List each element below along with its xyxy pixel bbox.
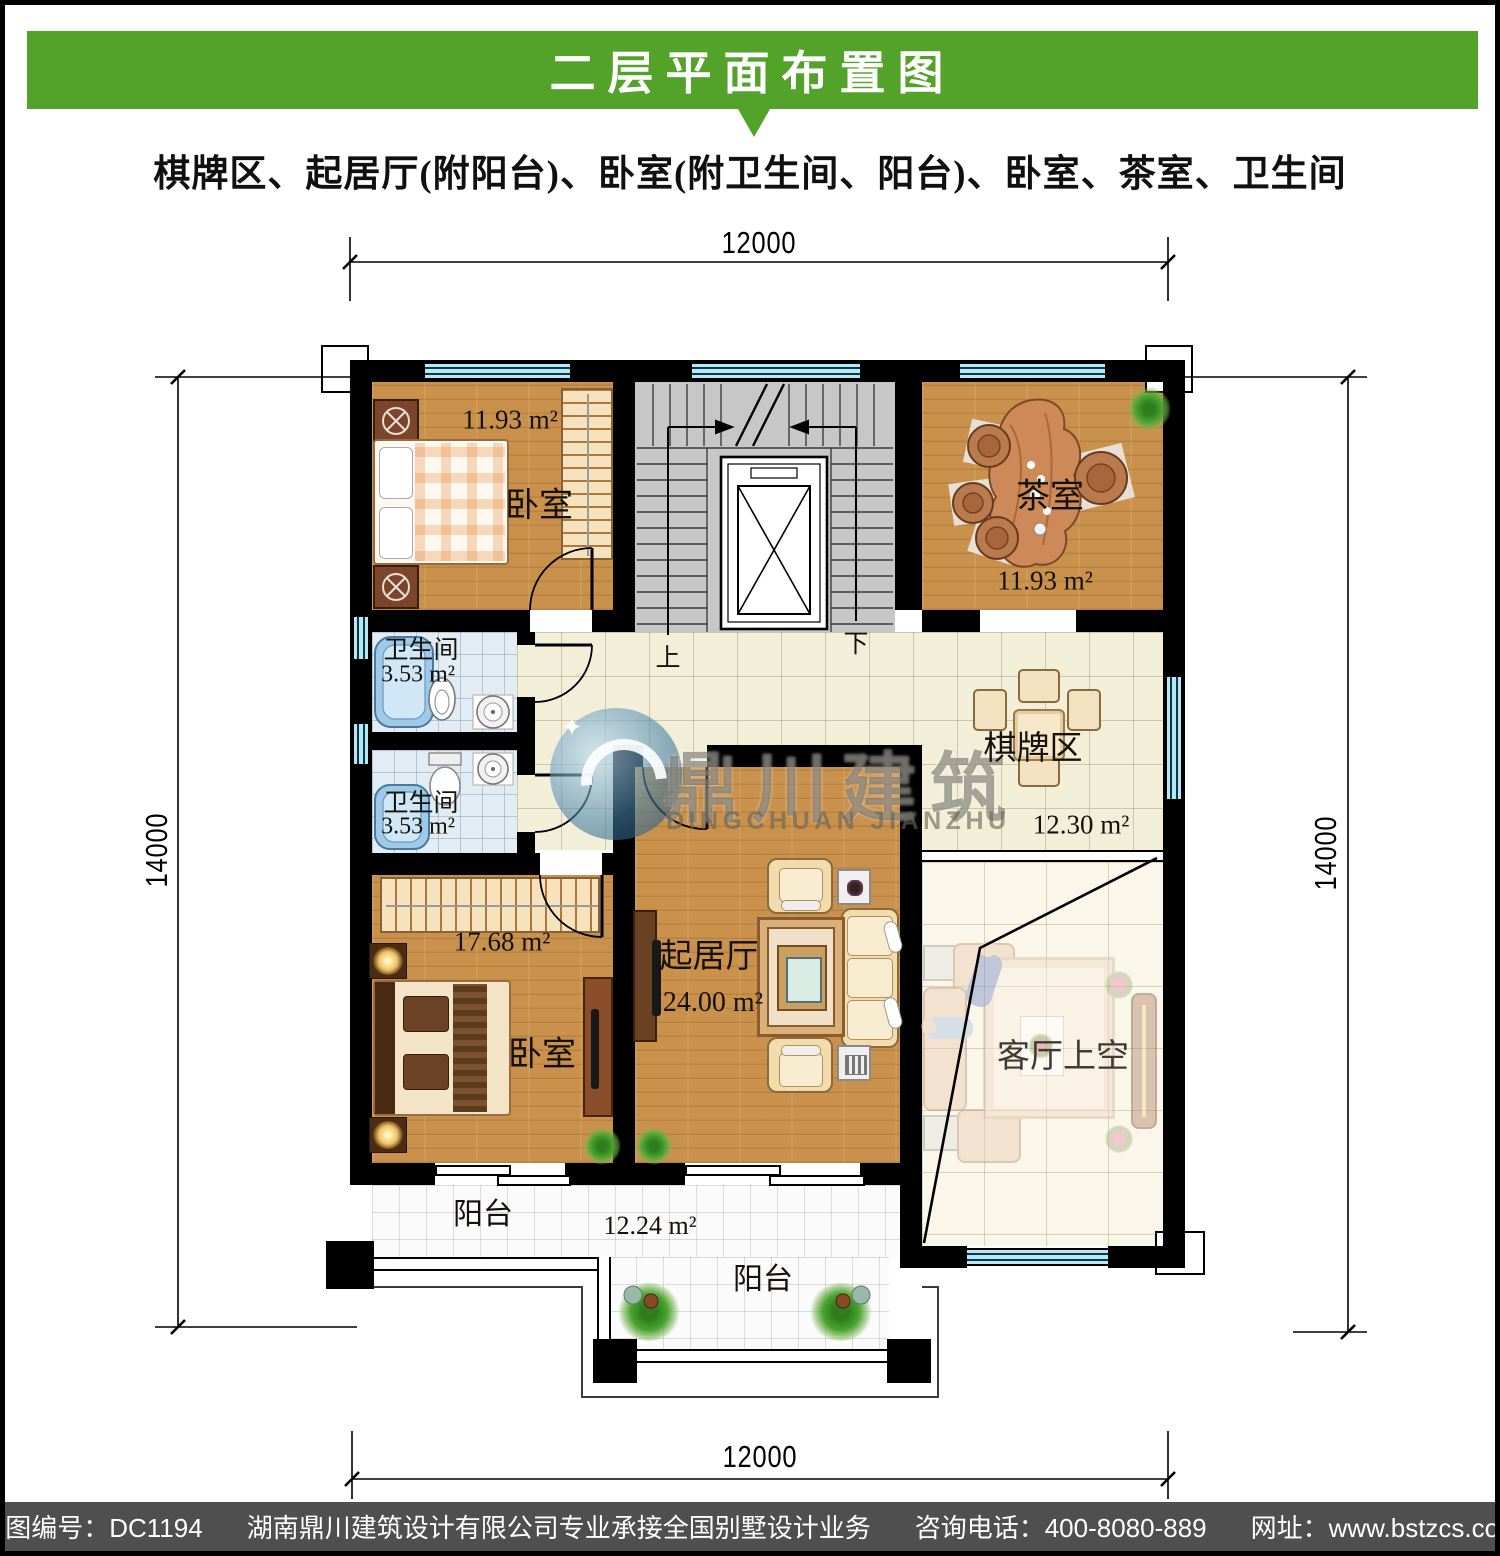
- dim-right: 14000: [1308, 816, 1344, 891]
- tv-cabinet-icon: [633, 910, 657, 1042]
- room-list-subtitle: 棋牌区、起居厅(附阳台)、卧室(附卫生间、阳台)、卧室、茶室、卫生间: [5, 143, 1495, 197]
- headboard-icon: [375, 982, 395, 1114]
- eave-line-join: [922, 1286, 939, 1288]
- wall-bedroom-top-bottom-a: [350, 610, 530, 632]
- wall-south-b: [565, 1163, 685, 1185]
- label-living-room: 起居厅: [660, 929, 759, 977]
- sliding-door-bedroom-leaf2: [497, 1175, 571, 1186]
- armchair-icon: [767, 1037, 833, 1093]
- eave-line-front: [581, 1396, 939, 1398]
- plant-icon: [583, 1127, 621, 1165]
- balcony-rail-left: [350, 1257, 598, 1271]
- dim-bottom: 12000: [723, 1439, 798, 1475]
- footer-website: 网址：www.bstzcs.com: [1251, 1508, 1500, 1545]
- radio-icon: [845, 1055, 867, 1075]
- wall-tearoom-bottom-b: [1076, 610, 1163, 632]
- balcony-column-mid: [593, 1339, 637, 1383]
- area-balcony-main: 12.24 m²: [603, 1211, 696, 1241]
- banner-pointer-triangle: [738, 109, 770, 137]
- bed-blanket-icon: [415, 443, 505, 561]
- tv-cabinet-icon: [1131, 993, 1157, 1129]
- balcony-rail-front: [607, 1349, 891, 1363]
- label-balcony-main: 阳台: [453, 1189, 513, 1233]
- area-bath-1: 3.53 m²: [381, 662, 455, 689]
- tv-icon: [1142, 1005, 1146, 1117]
- title-banner: 二层平面布置图: [27, 31, 1478, 109]
- window-top-bedroom: [425, 362, 570, 380]
- footer-company: 湖南鼎川建筑设计有限公司专业承接全国别墅设计业务: [247, 1508, 871, 1545]
- wall-outer-right: [1163, 382, 1185, 1268]
- page-title: 二层平面布置图: [550, 37, 956, 103]
- label-balcony-outer: 阳台: [733, 1254, 793, 1298]
- wardrobe-rail: [587, 394, 589, 556]
- eave-line-step: [581, 1286, 583, 1398]
- table-glass-icon: [786, 957, 822, 1003]
- sliding-door-living-leaf1: [685, 1165, 781, 1176]
- coffee-table-icon: [777, 945, 827, 1011]
- pillow-icon: [379, 507, 413, 559]
- cushion-icon: [781, 900, 821, 911]
- wall-south-c: [860, 1163, 922, 1185]
- eave-line-left: [350, 1286, 583, 1288]
- cushion-icon: [779, 868, 823, 902]
- person-head-icon: [980, 941, 996, 957]
- footer-drawing-no: 本图编号：DC1194: [0, 1508, 203, 1545]
- wall-stair-tearoom: [895, 382, 922, 610]
- plant-icon: [847, 880, 863, 896]
- cushion-icon: [779, 1053, 823, 1087]
- wall-bedroom-bottom-top-a: [350, 853, 540, 875]
- label-stair-down: 下: [843, 624, 868, 660]
- floorplan-poster: 二层平面布置图 棋牌区、起居厅(附阳台)、卧室(附卫生间、阳台)、卧室、茶室、卫…: [0, 0, 1500, 1556]
- nightstand-icon: [373, 399, 419, 443]
- nightstand-icon: [373, 565, 419, 609]
- wall-tearoom-bottom-a: [922, 610, 980, 632]
- area-living-room: 24.00 m²: [663, 987, 763, 1019]
- wall-outer-left: [350, 382, 372, 1185]
- wall-void-bottom-b: [1108, 1246, 1185, 1268]
- wall-void-bottom-a: [900, 1246, 967, 1268]
- wall-living-void: [900, 767, 922, 1268]
- balcony-plant-icon: [809, 1283, 873, 1341]
- area-tea-room: 11.93 m²: [997, 566, 1093, 597]
- pillow-icon: [403, 1054, 449, 1090]
- chair-icon: [1018, 669, 1060, 703]
- flower-icon: [1105, 1125, 1133, 1153]
- label-bedroom-top: 卧室: [505, 478, 573, 527]
- wall-bath-right-a: [517, 632, 535, 645]
- area-bedroom-top: 11.93 m²: [462, 405, 558, 436]
- label-bedroom-bottom: 卧室: [508, 1027, 576, 1076]
- area-bath-2: 3.53 m²: [381, 814, 455, 841]
- armchair-icon: [767, 858, 833, 914]
- window-top-stair: [692, 362, 860, 380]
- footer-bar: 本图编号：DC1194 湖南鼎川建筑设计有限公司专业承接全国别墅设计业务 咨询电…: [5, 1502, 1495, 1551]
- window-top-tearoom: [960, 362, 1105, 380]
- label-chess-area: 棋牌区: [984, 721, 1083, 769]
- tv-cabinet-icon: [583, 977, 613, 1117]
- window-left-bath2: [352, 724, 370, 764]
- area-chess-area: 12.30 m²: [1033, 810, 1130, 841]
- plant-icon: [1127, 387, 1171, 431]
- label-tea-room: 茶室: [1016, 469, 1084, 518]
- side-table-icon: [837, 869, 871, 905]
- sofa-icon: [841, 908, 899, 1048]
- void-edge-beam: [922, 850, 1163, 862]
- wall-bath-divider: [372, 732, 535, 750]
- wardrobe-icon: [561, 388, 613, 560]
- footer-phone: 咨询电话：400-8080-889: [915, 1508, 1207, 1545]
- floor-stairwell: [635, 382, 895, 632]
- side-table-icon: [837, 1045, 871, 1081]
- dim-top: 12000: [722, 225, 797, 261]
- plant-icon: [635, 1127, 673, 1165]
- flower-icon: [1105, 971, 1133, 999]
- lamp-icon: [369, 943, 407, 979]
- wall-bedroom-living: [613, 745, 635, 1185]
- bed-icon: [373, 980, 511, 1116]
- cushion-icon: [781, 1045, 821, 1056]
- balcony-column-left: [326, 1241, 374, 1289]
- cushion-icon: [847, 958, 893, 998]
- wall-living-top-b: [707, 745, 922, 767]
- label-stair-up: 上: [655, 638, 680, 674]
- balcony-rail-step: [597, 1257, 611, 1349]
- wardrobe-rail: [386, 905, 598, 907]
- label-void: 客厅上空: [997, 1029, 1129, 1077]
- wall-living-top-a: [635, 745, 643, 767]
- sliding-door-living-leaf2: [769, 1175, 865, 1186]
- bed-runner-icon: [453, 984, 487, 1112]
- balcony-column-right: [887, 1339, 931, 1383]
- wardrobe-icon: [380, 877, 600, 933]
- tv-icon: [591, 1009, 599, 1089]
- wall-south-a: [350, 1163, 435, 1185]
- person-head-icon: [921, 1019, 936, 1034]
- lamp-icon: [369, 1117, 407, 1153]
- window-left-bath1: [352, 617, 370, 659]
- balcony-plant-icon: [617, 1283, 681, 1341]
- window-bottom-void: [967, 1248, 1108, 1266]
- area-bedroom-bottom: 17.68 m²: [454, 927, 551, 958]
- sofa-icon: [923, 987, 967, 1111]
- pillow-icon: [379, 447, 413, 499]
- pillow-icon: [403, 996, 449, 1032]
- wall-bedroom-top-bottom-b: [592, 610, 635, 632]
- window-right-chess: [1165, 677, 1183, 799]
- corner-table-icon: [923, 1115, 959, 1151]
- eave-line-right: [937, 1286, 939, 1398]
- wall-bedroom-stair: [613, 382, 635, 610]
- dim-left: 14000: [139, 813, 175, 888]
